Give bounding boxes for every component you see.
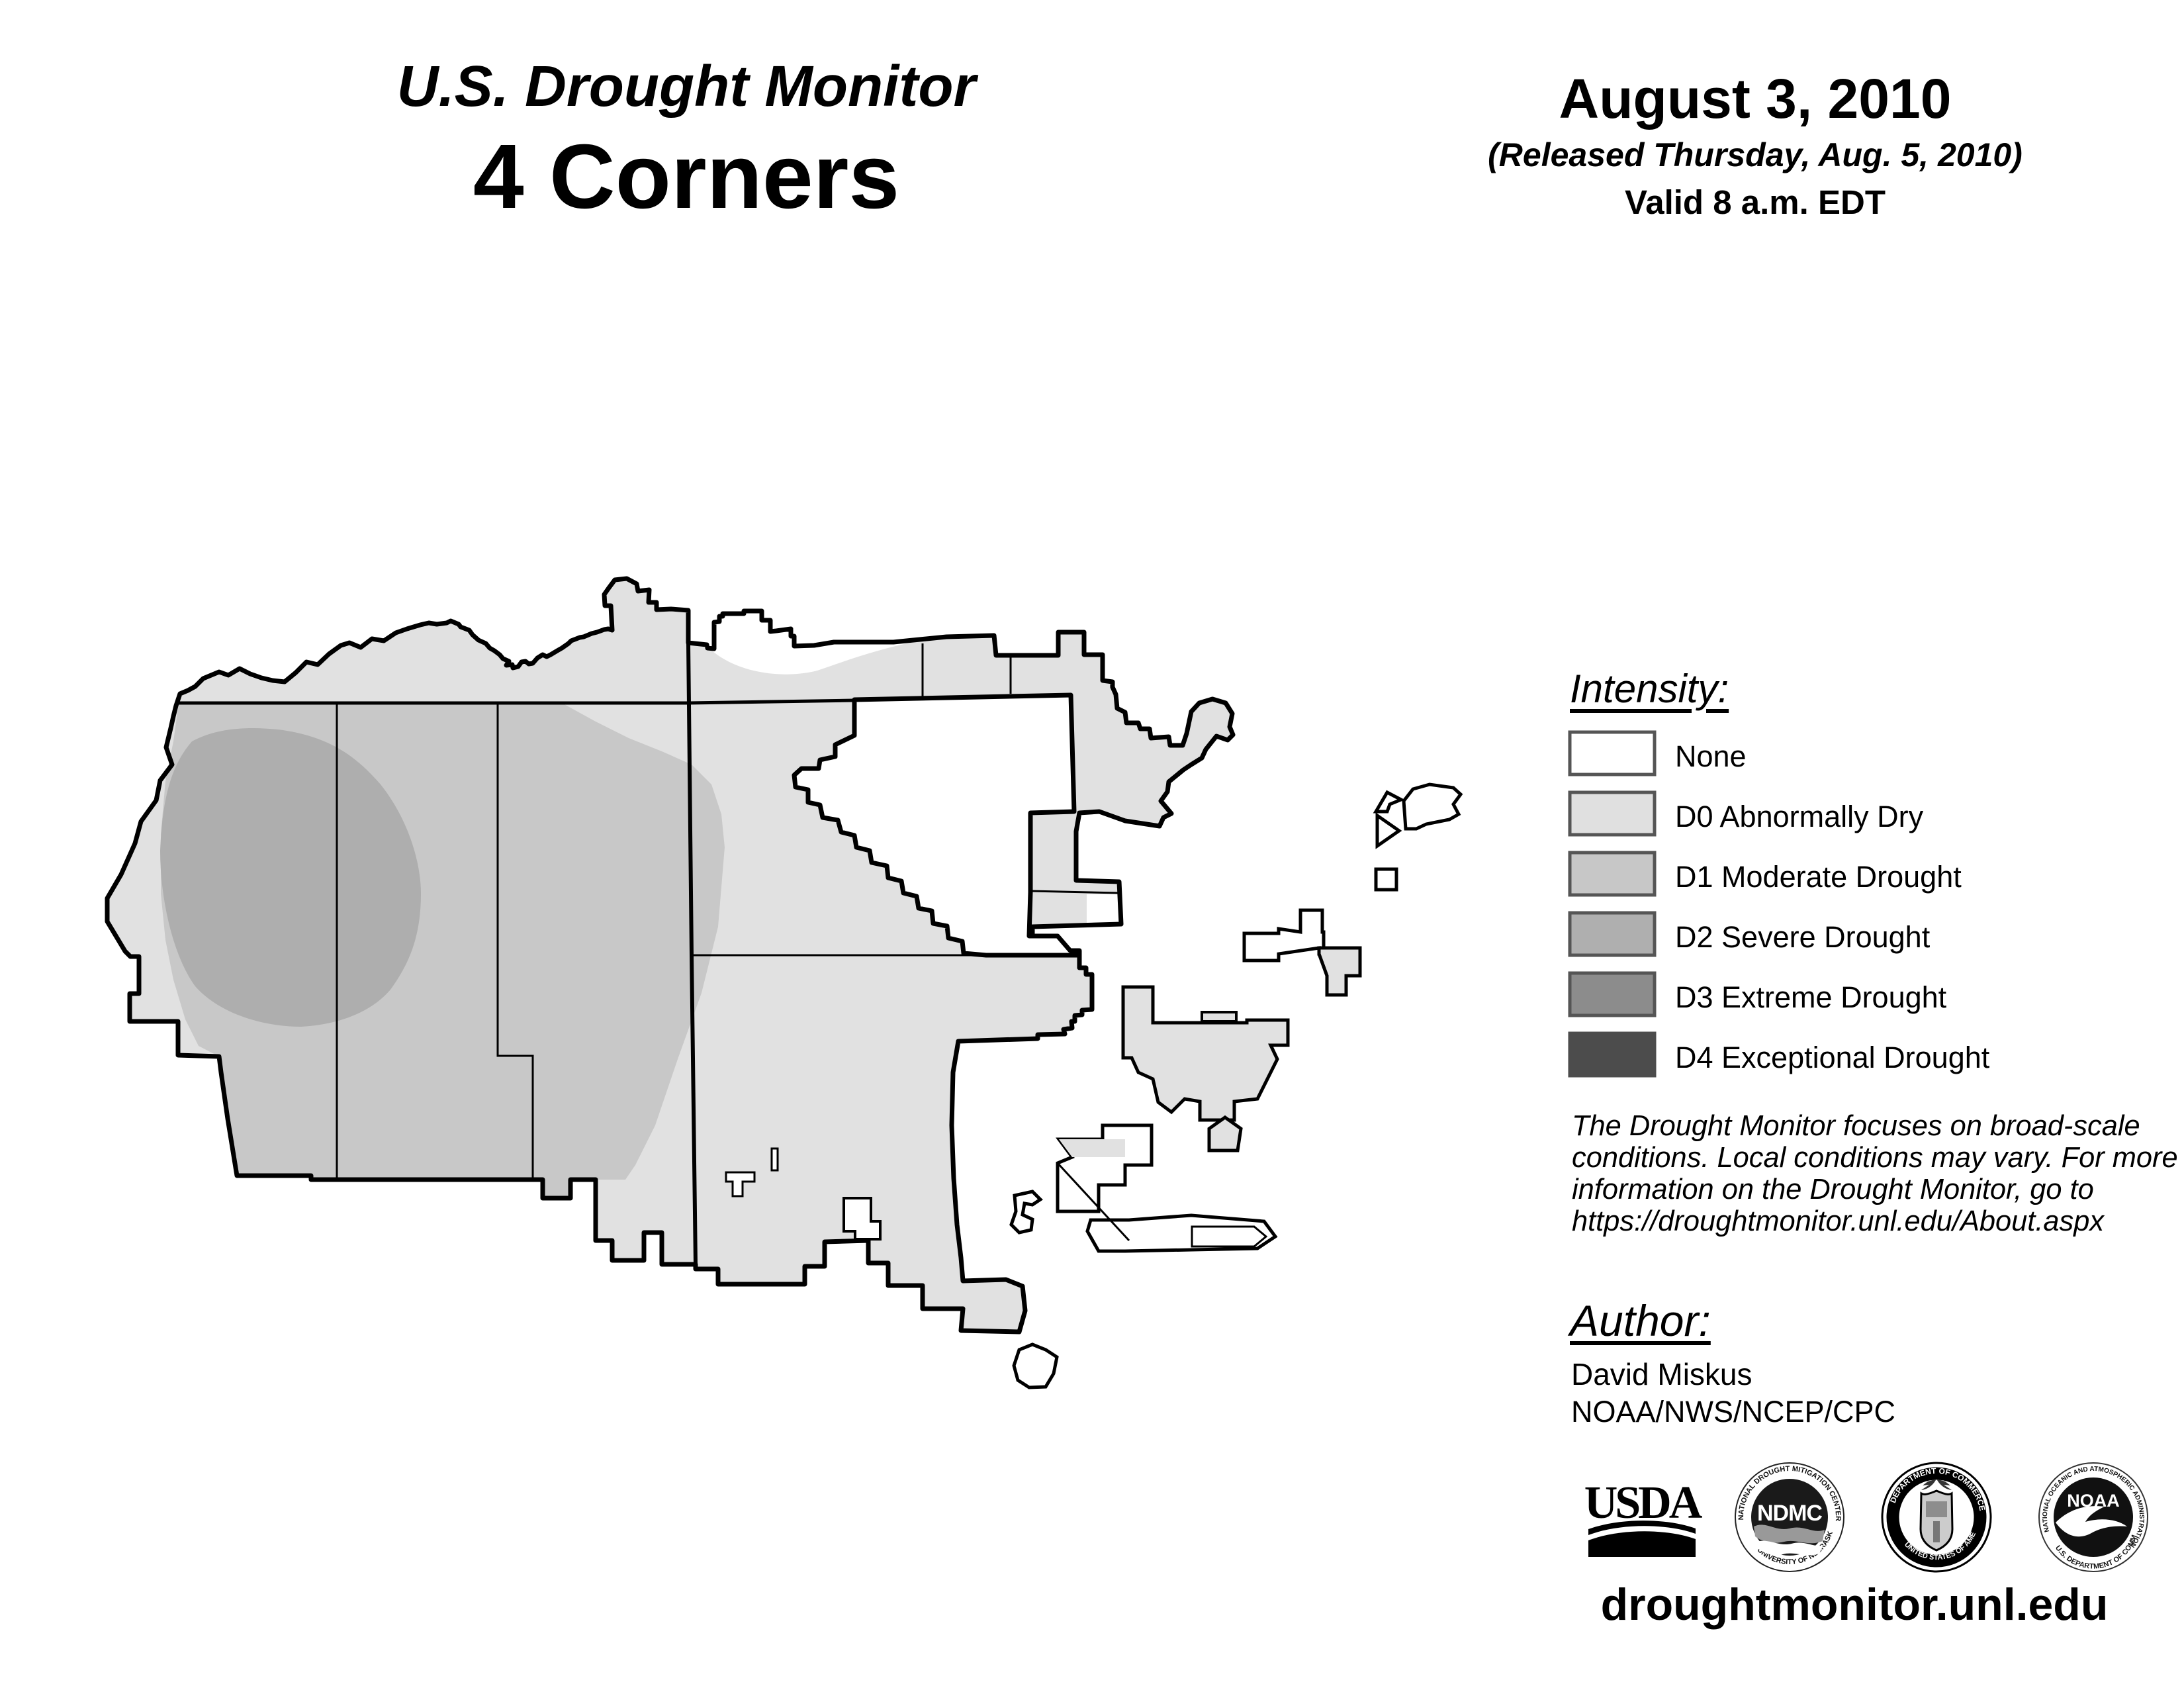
svg-text:NDMC: NDMC bbox=[1757, 1501, 1822, 1526]
